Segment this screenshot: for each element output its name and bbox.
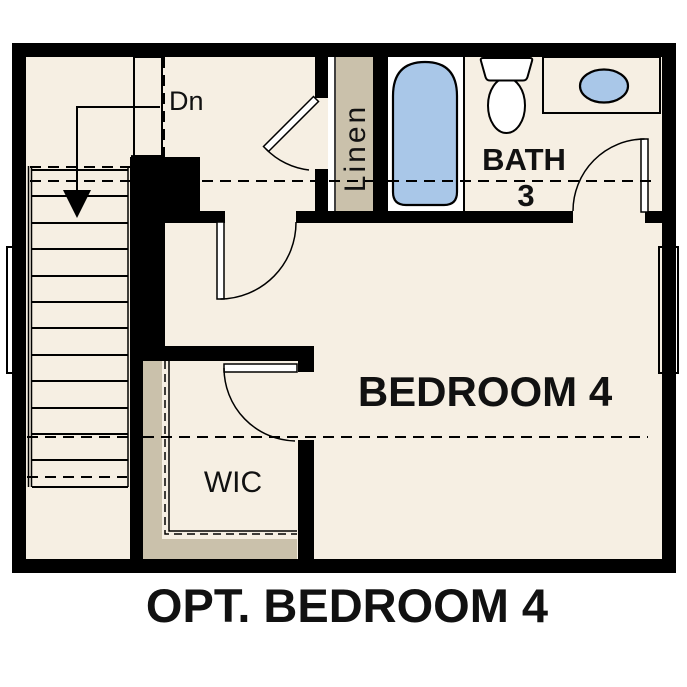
bath-south-wall-east: [645, 211, 662, 223]
linen-east-wall: [373, 57, 388, 211]
landing-wall-block: [133, 157, 200, 217]
wic-north-wall: [143, 346, 307, 361]
door-leaf: [641, 139, 648, 212]
door-leaf: [217, 222, 224, 299]
bath-label: BATH: [482, 142, 566, 177]
bedroom-west-chase-wall: [143, 217, 165, 353]
floor-plan-drawing: Dn Linen BATH 3 BEDROOM 4 WIC OPT. BEDRO…: [0, 0, 687, 687]
wic-label: WIC: [204, 466, 262, 499]
linen-label: Linen: [339, 104, 372, 192]
bedroom-label: BEDROOM 4: [358, 368, 613, 415]
linen-west-wall-upper: [315, 57, 328, 98]
door-leaf: [224, 364, 297, 372]
toilet-bowl: [488, 78, 525, 133]
plan-title: OPT. BEDROOM 4: [146, 579, 548, 632]
wic-shelf-left: [143, 361, 162, 559]
wic-east-wall: [298, 440, 314, 559]
bathtub: [393, 62, 457, 205]
wic-shelf-bottom: [143, 539, 297, 559]
toilet-tank: [481, 58, 533, 81]
wic-east-wall-stub: [298, 346, 314, 372]
hall-south-wall: [130, 211, 225, 223]
bath-number-label: 3: [517, 178, 534, 213]
sink: [580, 70, 628, 103]
linen-west-wall-lower: [315, 169, 328, 223]
stairs-dn-label: Dn: [169, 86, 204, 116]
floor-plan-page: Dn Linen BATH 3 BEDROOM 4 WIC OPT. BEDRO…: [0, 0, 687, 687]
